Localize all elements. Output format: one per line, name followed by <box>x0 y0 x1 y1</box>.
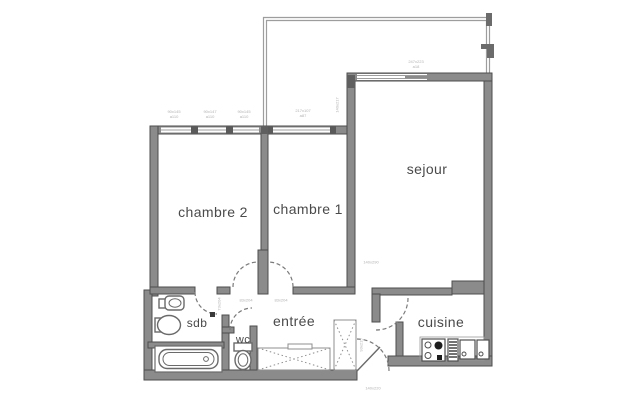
door-arc-chambre1 <box>268 262 293 287</box>
dimension-label: 90x147 a110 <box>203 109 216 119</box>
dimension-label: 140x290 <box>363 260 378 265</box>
wall-sejour-left <box>347 81 355 292</box>
dimension-label: 140x217 <box>335 97 340 112</box>
wall-cuisine-top <box>372 288 452 295</box>
room-label-sdb: sdb <box>187 316 208 330</box>
wall-left <box>150 126 158 296</box>
wall-chambres-divider-stub <box>258 250 268 294</box>
door-arc-chambre2 <box>233 262 258 287</box>
balcony-pillar <box>481 13 494 58</box>
room-label-chambre1: chambre 1 <box>273 201 343 217</box>
wall-wc-top-stub <box>222 327 234 333</box>
bathtub <box>155 346 222 372</box>
wall-hall-top-c <box>293 287 355 294</box>
floor-plan: chambre 2 chambre 1 sejour sdb entrée wc… <box>0 0 640 407</box>
round-basin <box>155 316 181 335</box>
wall-cuisine-top-jog <box>452 281 484 294</box>
windows <box>161 74 427 134</box>
dimension-label: 83x204 <box>274 298 287 303</box>
dimension-label: 140x220 <box>365 386 380 391</box>
closet-hall <box>334 320 356 370</box>
room-label-sejour: sejour <box>407 161 448 177</box>
window-sejour <box>357 74 427 80</box>
room-label-chambre2: chambre 2 <box>178 204 248 220</box>
stove <box>422 339 445 361</box>
dimension-label: 247x223 a18 <box>408 59 423 69</box>
kitchen-sink-double <box>460 340 489 359</box>
dimension-label: 93x215 <box>359 338 364 351</box>
dimension-label: 73x204 <box>217 297 222 310</box>
room-label-cuisine: cuisine <box>418 314 464 330</box>
room-label-wc: wc <box>236 334 250 346</box>
wall-hall-top-a <box>150 287 195 294</box>
wall-cuisine-left-lower <box>396 322 403 356</box>
door-arc-sdb <box>195 292 217 314</box>
kitchen-fixtures <box>420 337 489 361</box>
sdb-door-stop <box>210 312 215 317</box>
washbasin <box>159 296 184 310</box>
walls <box>144 73 492 380</box>
closet-entree <box>258 344 330 370</box>
wall-junctions <box>261 75 355 134</box>
room-label-entree: entrée <box>273 313 315 329</box>
toilet <box>234 343 252 370</box>
wall-hall-top-b <box>217 287 230 294</box>
dimension-label: 217x107 a87 <box>295 108 310 118</box>
dimension-label: 90x145 a110 <box>167 109 180 119</box>
drainer <box>448 339 458 361</box>
dimension-label: 83x204 <box>239 298 252 303</box>
dimension-label: 90x145 a110 <box>237 109 250 119</box>
wall-cuisine-left-upper <box>372 294 380 322</box>
wall-left-lower <box>144 290 152 380</box>
wall-right <box>484 81 492 366</box>
